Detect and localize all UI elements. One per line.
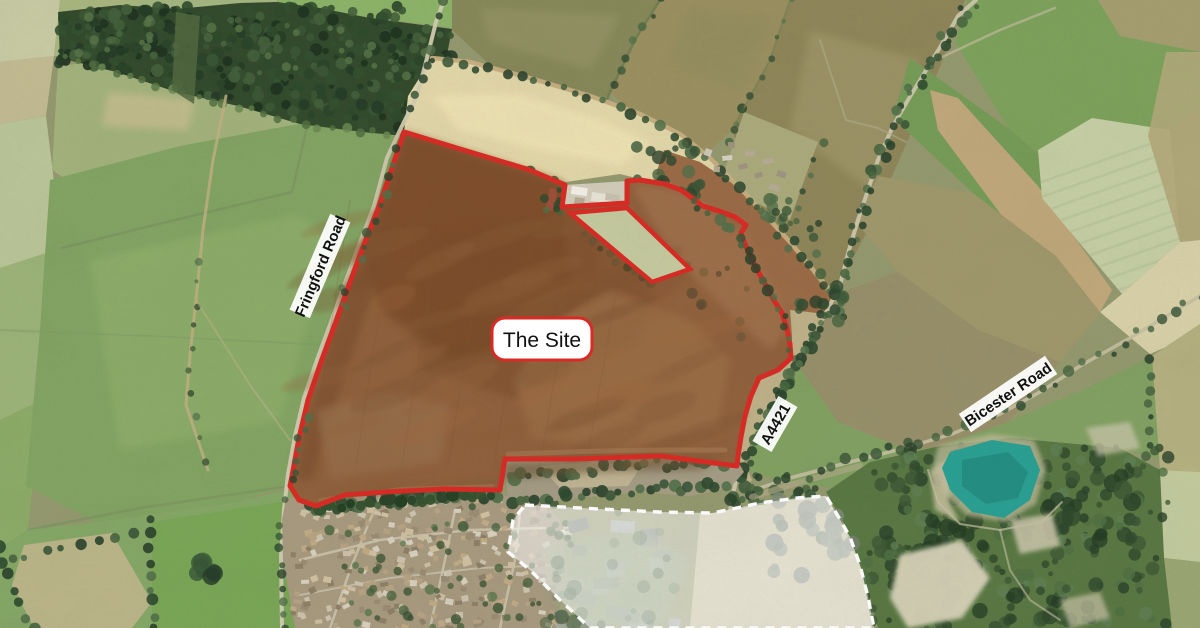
svg-text:The Site: The Site [503,329,581,352]
